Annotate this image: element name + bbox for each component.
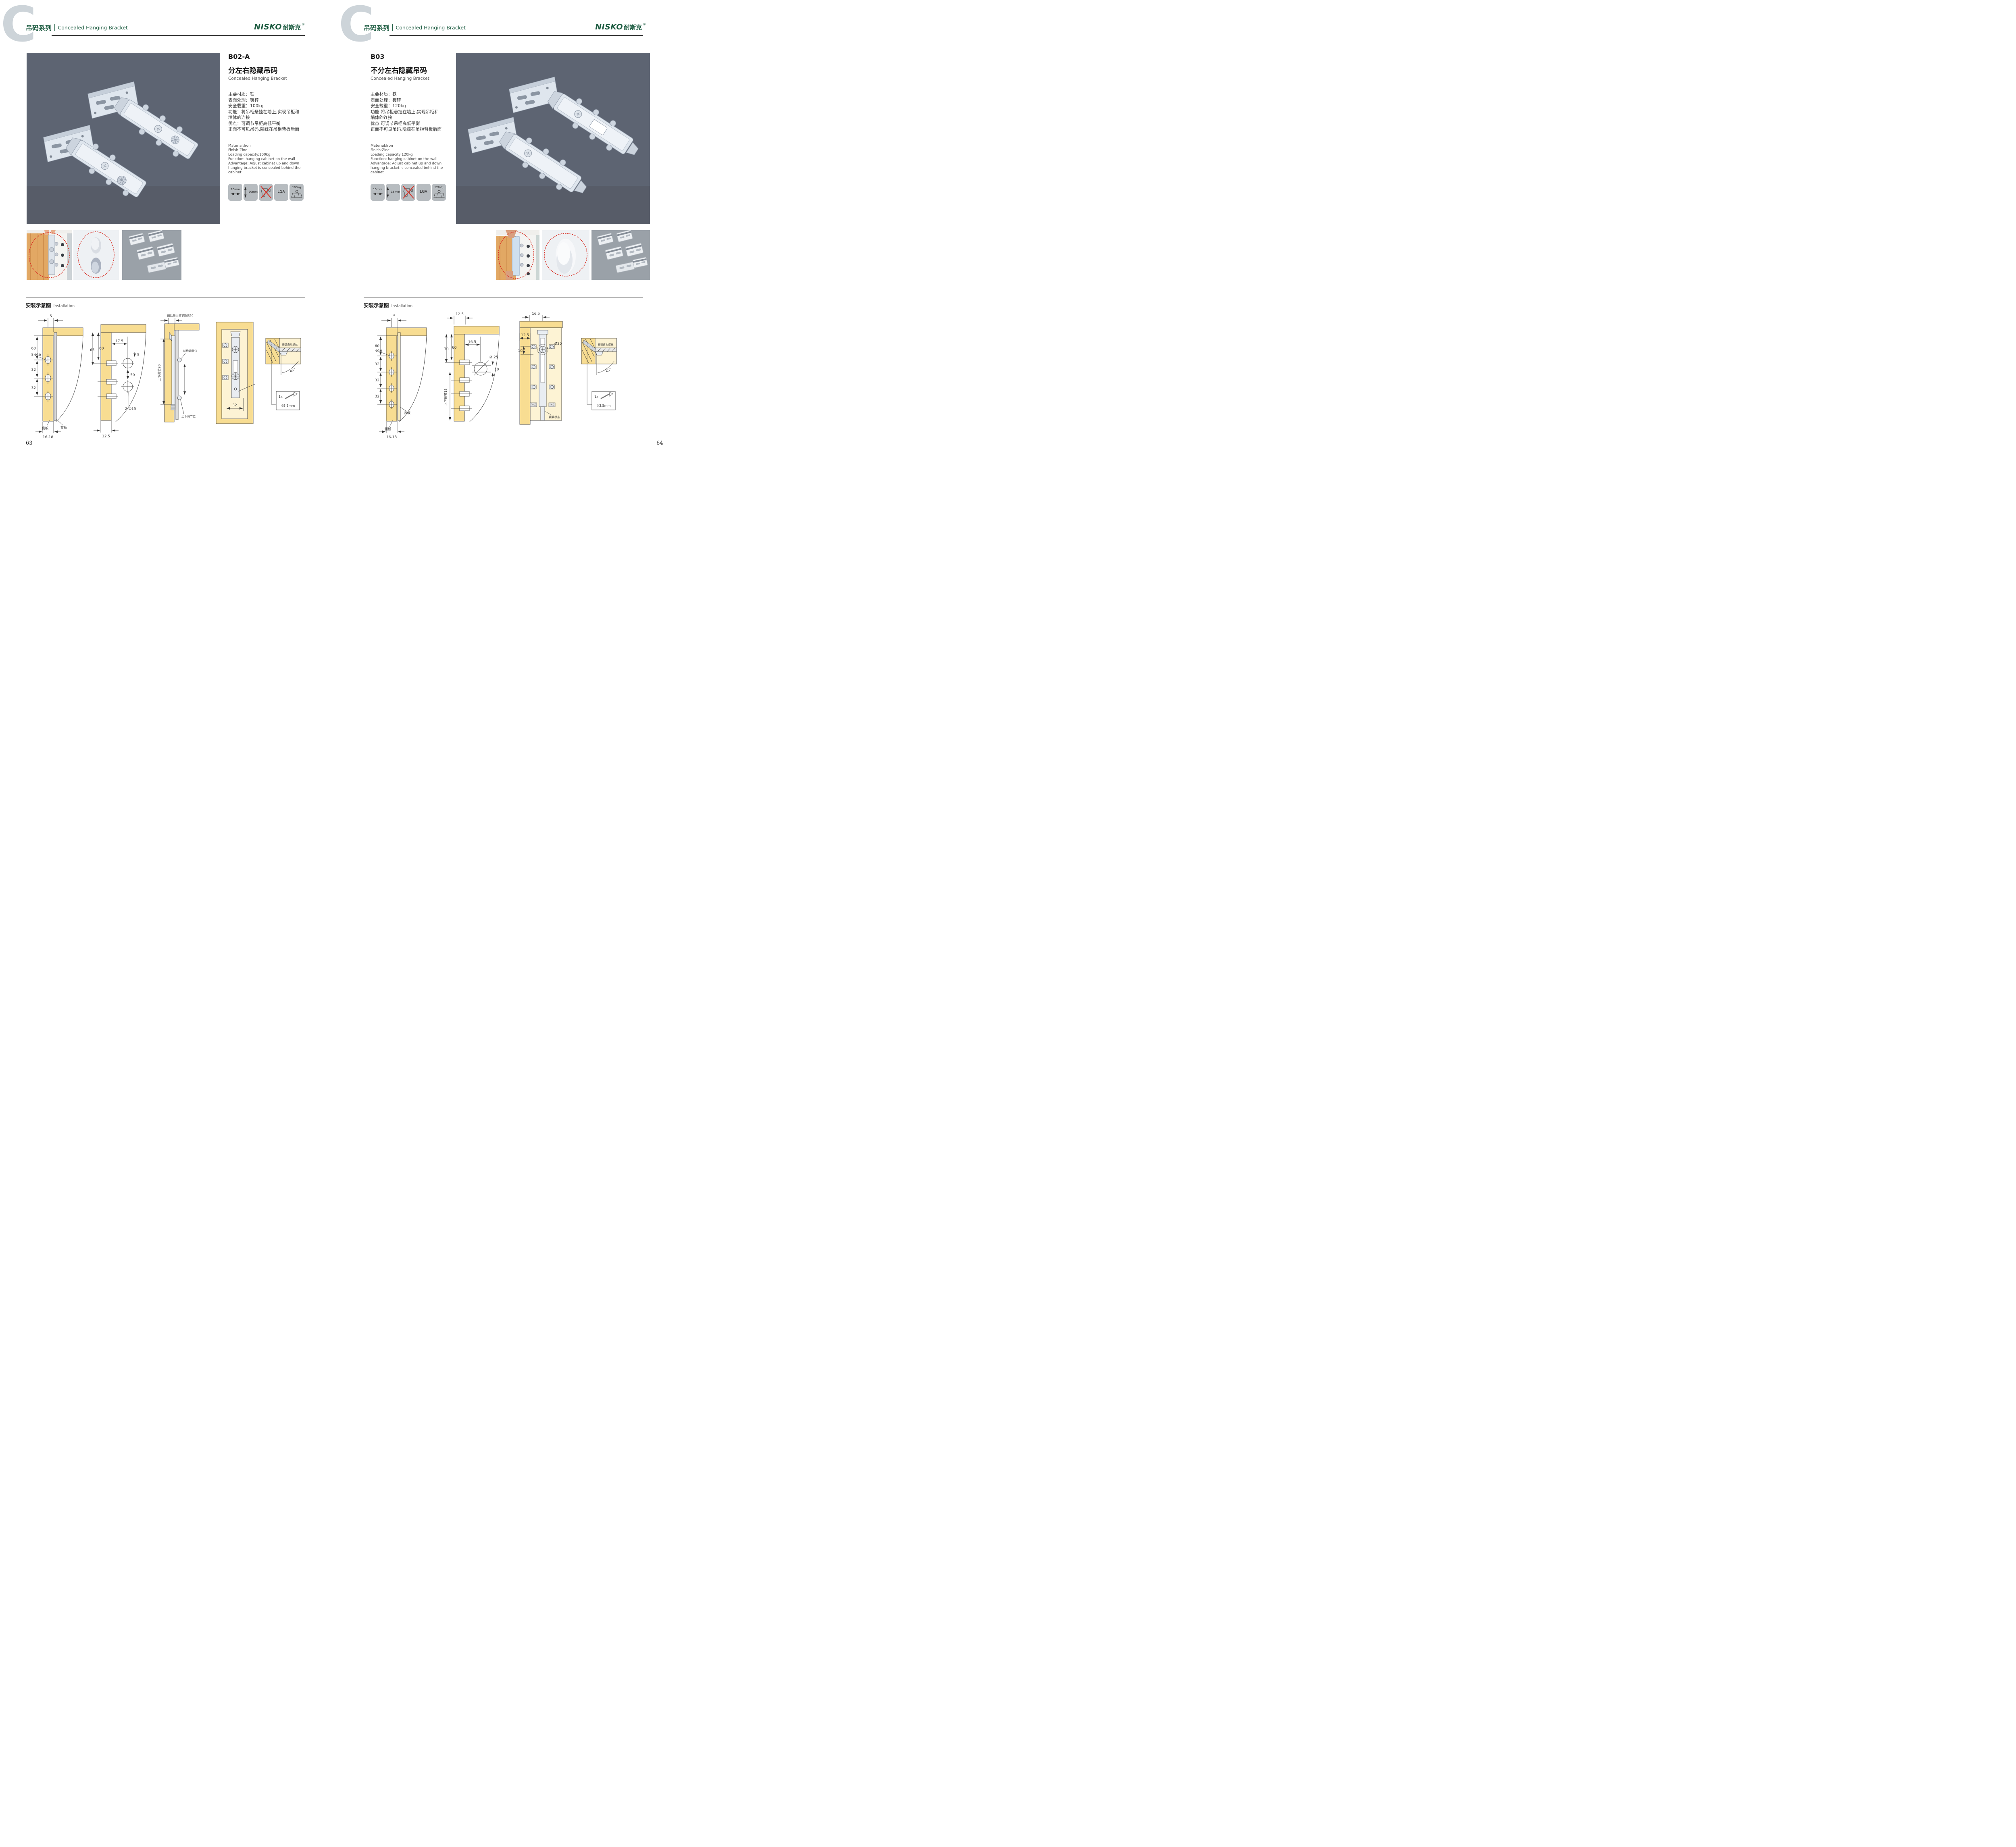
spec-line: Function: hanging cabinet on the wall — [228, 157, 306, 162]
brand-name-zh: 耐斯克 — [283, 23, 301, 31]
dim-label: 16.5 — [532, 312, 540, 316]
series-title-zh: 吊码系列 — [364, 23, 389, 32]
icon-tile-cert: LGA — [274, 184, 288, 201]
hole-spec-label: 3-Φ10 — [31, 353, 41, 357]
installation-title-zh: 安装示意图 — [26, 301, 51, 309]
dim-label: 32 — [375, 379, 379, 383]
spec-line: Advantage: Adjust cabinet up and down — [228, 162, 306, 166]
feature-icons: 15mm 18mm LGA 1 — [371, 184, 450, 201]
spec-line: 安全载重：100kg — [228, 103, 306, 109]
product-name-en: Concealed Hanging Bracket — [371, 76, 450, 81]
spec-line: Finish:Zinc — [371, 148, 450, 153]
dim-label: 65 — [90, 348, 94, 352]
dim-label: 10 — [494, 368, 499, 372]
spec-line: 墙体的连接 — [371, 115, 450, 121]
spec-line: 正面不可见吊码,隐藏在吊柜背板后面 — [228, 127, 306, 133]
installation-title-en: Installation — [392, 304, 413, 308]
spec-line: 功能：将吊柜悬挂在墙上,实现吊柜和 — [228, 109, 306, 115]
dim-label: 16-18 — [386, 435, 397, 439]
dim-label: 12.5 — [102, 435, 110, 439]
thumb-installed-art — [496, 230, 539, 280]
load-value: 120Kg — [434, 186, 443, 189]
thumbnail-plate-set — [591, 230, 650, 280]
screw-dia-label: Φ3.5mm — [281, 404, 295, 408]
spec-line: 主要材质：铁 — [371, 92, 450, 98]
spec-line: 安全载重：120kg — [371, 103, 450, 109]
horizontal-arrow-icon — [372, 192, 383, 196]
dim-label: 12.5 — [456, 312, 464, 316]
cert-label: LGA — [277, 190, 285, 194]
diagram-front-view: 16.5 Ø25 12.5 10 — [517, 312, 566, 439]
header-rule — [52, 35, 305, 36]
hole-spec-label: Ø25 — [554, 341, 562, 346]
icon-tile-load: 120Kg — [432, 184, 446, 201]
thumbnail-installed — [27, 230, 72, 280]
icon-tile-cert: LGA — [417, 184, 431, 201]
screw-qty-label: 1x — [279, 395, 283, 399]
vertical-adjust-label: 上下调节20 — [158, 364, 161, 381]
dim-label: 32 — [31, 386, 36, 390]
page-header: 吊码系列 Concealed Hanging Bracket — [364, 23, 466, 32]
page-64: C 吊码系列 Concealed Hanging Bracket NISKO 耐… — [338, 0, 676, 462]
spec-line: Material:Iron — [228, 144, 306, 148]
spec-line: Loading capacity:100kg — [228, 153, 306, 157]
spec-line: Finish:Zinc — [228, 148, 306, 153]
installation-title: 安装示意图 Installation — [26, 301, 75, 309]
hole-spec-label: Φ10 — [375, 349, 382, 353]
spec-line: 表面处理：镀锌 — [371, 98, 450, 104]
dim-label: 5 — [50, 314, 52, 318]
dim-label: 32 — [232, 404, 237, 408]
series-title-en: Concealed Hanging Bracket — [58, 25, 128, 31]
side-panel-label: 侧板 — [385, 427, 391, 431]
thumbnail-concealed-holes — [73, 230, 119, 280]
thumb-installed-art — [27, 230, 72, 280]
thumbnail-concealed-hole — [542, 230, 589, 280]
product-photo-b02a — [27, 53, 220, 224]
specs-en: Material:Iron Finish:Zinc Loading capaci… — [228, 144, 306, 175]
icon-tile-width: 20mm — [228, 184, 242, 201]
spec-line: Material:Iron — [371, 144, 450, 148]
thumb-plates-art — [591, 230, 650, 280]
dim-label: 32 — [375, 395, 379, 399]
dim-label: 32 — [375, 362, 379, 366]
diagram-side-section: 5 60 32 32 3-Φ10 侧板 背板 16-18 — [31, 312, 87, 439]
dim-label: 60 — [375, 344, 380, 348]
header-divider — [392, 24, 393, 31]
thumb-plates-art — [122, 230, 181, 280]
series-title-zh: 吊码系列 — [26, 23, 52, 32]
no-drill-icon — [402, 185, 414, 199]
spec-line: 表面处理：镀锌 — [228, 98, 306, 104]
product-photo-b03 — [456, 53, 650, 224]
installation-title-zh: 安装示意图 — [364, 301, 389, 309]
dim-label: 10 — [518, 349, 523, 353]
dim-label: 5 — [393, 314, 396, 318]
brand-wordmark: NISKO — [254, 23, 282, 31]
installation-title: 安装示意图 Installation — [364, 301, 412, 309]
diagram-screw-detail: 安装自攻螺丝 45° 1x Φ3.5mm — [580, 312, 618, 439]
spec-line: 优点:可调节吊柜高低平衡 — [371, 121, 450, 127]
diagram-drilling: 17.5 65 60 5 50 2-Φ15 12.5 — [90, 312, 150, 439]
width-value: 20mm — [231, 188, 240, 191]
load-weight-icon — [291, 190, 302, 198]
thumb-holes-art — [73, 230, 119, 280]
diagram-side-section: 5 60 32 32 32 Φ10 背板 侧板 16-18 — [374, 312, 431, 439]
dim-label: 50 — [130, 373, 135, 377]
product-code: B03 — [371, 53, 450, 60]
specs-en: Material:Iron Finish:Zinc Loading capaci… — [371, 144, 450, 175]
brand-name-zh: 耐斯克 — [624, 23, 642, 31]
dim-label: 16.5 — [468, 340, 476, 344]
specs-zh: 主要材质：铁 表面处理：镀锌 安全载重：100kg 功能：将吊柜悬挂在墙上,实现… — [228, 92, 306, 133]
product-photo-illustration — [456, 53, 650, 224]
spec-line: Advantage: Adjust cabinet up and down — [371, 162, 450, 166]
screw-dia-label: Φ3.5mm — [597, 404, 611, 408]
height-value: 20mm — [248, 191, 258, 193]
icon-tile-width: 15mm — [371, 184, 385, 201]
page-number: 64 — [656, 440, 663, 446]
screw-install-label: 安装自攻螺丝 — [598, 343, 614, 346]
screw-qty-label: 1x — [594, 395, 598, 399]
vertical-arrow-icon — [244, 186, 247, 199]
load-weight-icon — [433, 190, 445, 198]
no-drill-icon — [260, 185, 272, 199]
spec-line: 优点：可调节吊柜高低平衡 — [228, 121, 306, 127]
spec-line: hanging bracket is concealed behind the … — [371, 166, 450, 175]
diagram-drilling: 12.5 70 60 16.5 Ø 25 10 上下调节18 — [444, 312, 504, 439]
thumbnail-installed — [496, 230, 539, 280]
product-info-b02a: B02-A 分左右隐藏吊码 Concealed Hanging Bracket … — [228, 53, 306, 201]
brand-logo: NISKO 耐斯克 ® — [595, 23, 646, 31]
spec-line: 功能:将吊柜悬挂在墙上,实现吊柜和 — [371, 109, 450, 115]
hole-spec-label: 2-Φ15 — [125, 407, 136, 411]
width-value: 15mm — [373, 188, 382, 191]
height-value: 18mm — [391, 191, 400, 193]
brand-logo: NISKO 耐斯克 ® — [254, 23, 305, 31]
spec-line: hanging bracket is concealed behind the … — [228, 166, 306, 175]
icon-tile-load: 100kg — [289, 184, 304, 201]
dim-label: 60 — [31, 347, 36, 351]
page-63: C 吊码系列 Concealed Hanging Bracket NISKO 耐… — [0, 0, 338, 462]
angle-label: 45° — [605, 368, 612, 373]
locked-state-label: 锁紧状态 — [549, 415, 560, 419]
vertical-adjust-label: 上下调节18 — [444, 389, 448, 406]
specs-zh: 主要材质：铁 表面处理：镀锌 安全载重：120kg 功能:将吊柜悬挂在墙上,实现… — [371, 92, 450, 133]
diagram-front-view: 32 — [215, 312, 255, 439]
feature-icons: 20mm 20mm LGA 1 — [228, 184, 306, 201]
icon-tile-height: 20mm — [244, 184, 258, 201]
product-info-b03: B03 不分左右隐藏吊码 Concealed Hanging Bracket 主… — [371, 53, 450, 201]
side-panel-label: 侧板 — [42, 426, 48, 430]
dim-label: 17.5 — [115, 339, 123, 343]
dim-label: 32 — [31, 368, 36, 372]
diagram-screw-detail: 安装自攻螺丝 45° 1x Φ3.5mm — [264, 312, 302, 439]
product-name-zh: 不分左右隐藏吊码 — [371, 65, 450, 75]
product-name-zh: 分左右隐藏吊码 — [228, 65, 306, 75]
installation-title-en: Installation — [54, 304, 75, 308]
page-number: 63 — [26, 440, 33, 446]
dim-label: 5 — [137, 353, 140, 357]
icon-tile-no-drill — [259, 184, 273, 201]
hole-spec-label: Ø 25 — [489, 355, 498, 360]
spec-line: 主要材质：铁 — [228, 92, 306, 98]
section-divider — [364, 297, 643, 297]
registered-mark: ® — [643, 23, 646, 26]
dim-label: 60 — [452, 346, 457, 350]
load-value: 100kg — [292, 186, 301, 189]
spec-line: Loading capacity:120kg — [371, 153, 450, 157]
header-rule — [389, 35, 643, 36]
product-code: B02-A — [228, 53, 306, 60]
dim-label: 12.5 — [521, 333, 529, 337]
spec-line: Function: hanging cabinet on the wall — [371, 157, 450, 162]
up-down-adjust-label: 上下调节位 — [181, 414, 196, 418]
series-title-en: Concealed Hanging Bracket — [396, 25, 466, 31]
spec-line: 墙体的连接 — [228, 115, 306, 121]
adjust-range-label: 前后最大调节距离20 — [167, 314, 194, 317]
icon-tile-no-drill — [401, 184, 415, 201]
dim-label: 60 — [99, 347, 104, 351]
diagram-adjustment: 前后最大调节距离20 上下调节20 前后调节位 上下调节位 — [157, 312, 204, 439]
vertical-arrow-icon — [386, 186, 389, 199]
catalog-spread: C 吊码系列 Concealed Hanging Bracket NISKO 耐… — [0, 0, 676, 462]
header-divider — [54, 24, 55, 31]
spec-line: 正面不可见吊码,隐藏在吊柜背板后面 — [371, 127, 450, 133]
thumb-hole-art — [542, 230, 589, 280]
dim-label: 70 — [444, 347, 449, 352]
back-panel-label: 背板 — [60, 425, 67, 429]
dim-label: 16-18 — [43, 435, 53, 439]
front-back-adjust-label: 前后调节位 — [183, 349, 197, 353]
page-header: 吊码系列 Concealed Hanging Bracket — [26, 23, 128, 32]
brand-wordmark: NISKO — [595, 23, 623, 31]
product-name-en: Concealed Hanging Bracket — [228, 76, 306, 81]
section-divider — [26, 297, 305, 297]
angle-label: 45° — [289, 368, 296, 373]
icon-tile-height: 18mm — [386, 184, 400, 201]
thumbnail-plate-set — [122, 230, 181, 280]
screw-install-label: 安装自攻螺丝 — [282, 343, 298, 346]
horizontal-arrow-icon — [230, 192, 241, 196]
registered-mark: ® — [302, 23, 305, 26]
product-photo-illustration — [27, 53, 220, 224]
cert-label: LGA — [420, 190, 427, 194]
back-panel-label: 背板 — [404, 411, 410, 415]
